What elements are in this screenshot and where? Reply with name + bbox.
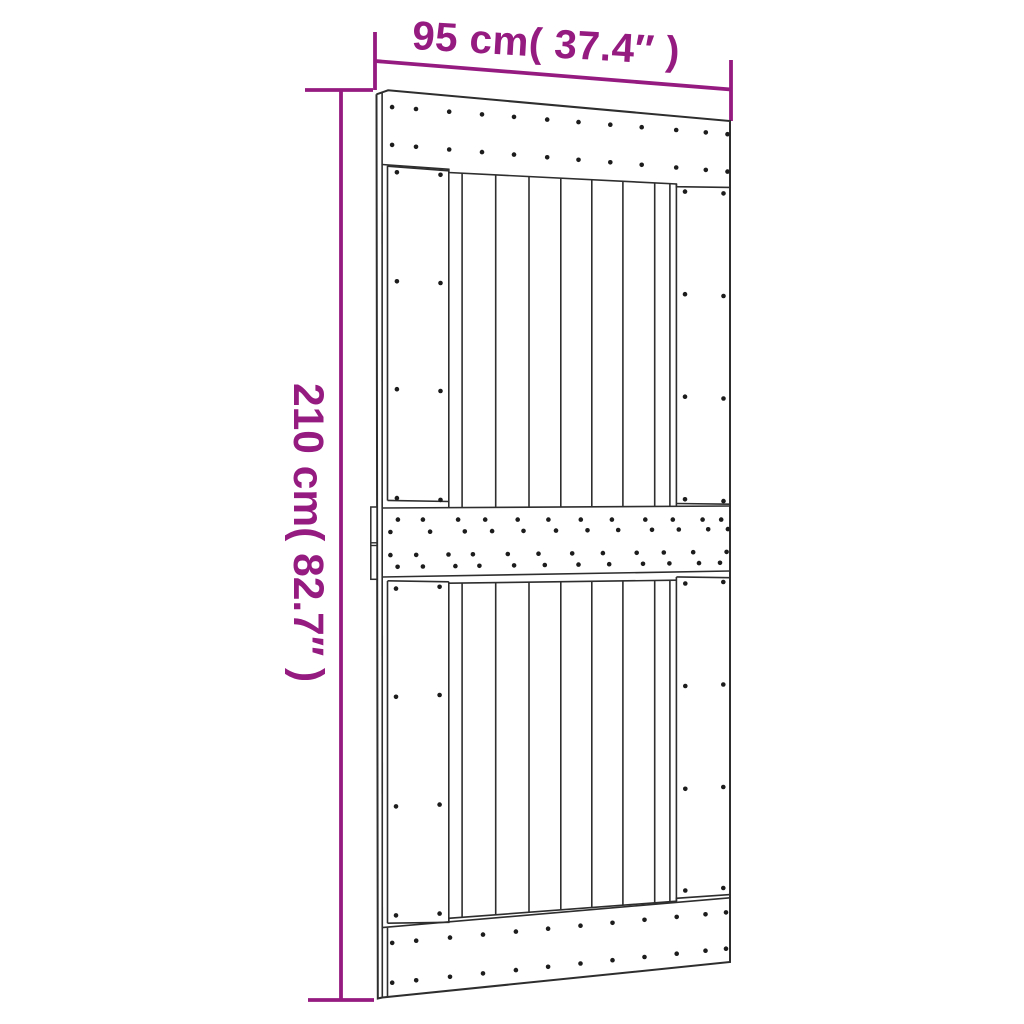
svg-text:210 cm( 82.7″ ): 210 cm( 82.7″ ): [284, 383, 331, 682]
